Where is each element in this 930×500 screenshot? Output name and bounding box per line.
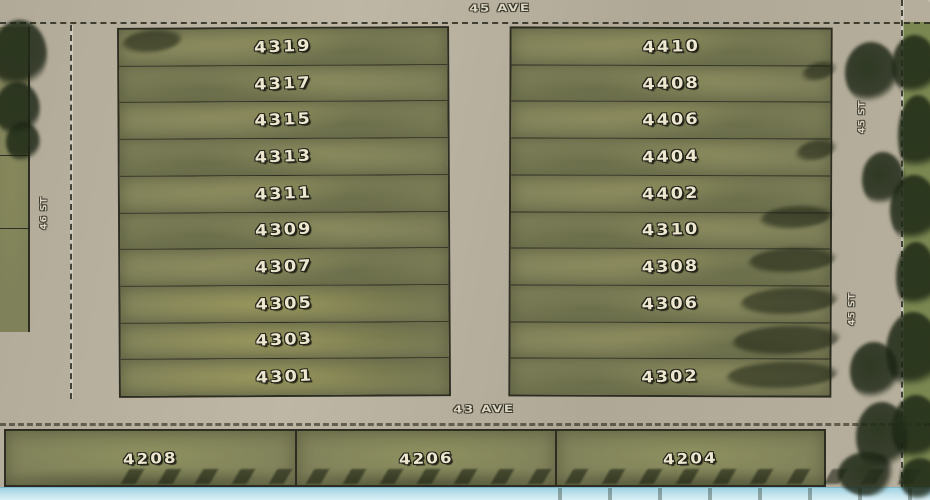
lot-number-label: 4306	[641, 294, 699, 314]
lot-number-label: 4206	[399, 448, 454, 467]
street-label-left-street: 46 ST	[40, 196, 50, 229]
lot-number-label: 4305	[255, 293, 313, 314]
survey-line-left	[70, 25, 73, 399]
lot-number-label: 4310	[641, 220, 699, 240]
lot-parcel[interactable]: 4408	[511, 65, 830, 103]
tree-canopy	[890, 175, 930, 245]
lot-number-label: 4311	[255, 183, 313, 204]
lot-parcel[interactable]: 4406	[511, 102, 830, 140]
tree-canopy	[850, 342, 898, 400]
lot-number-label: 4309	[255, 220, 313, 241]
lot-parcel[interactable]: 4404	[511, 139, 830, 177]
lot-parcel[interactable]: 4311	[120, 175, 448, 213]
survey-line-top	[0, 22, 930, 24]
tree-canopy	[892, 35, 930, 97]
lot-number-label: 4204	[663, 448, 718, 467]
aerial-map[interactable]: 4319 4317 4315 4313 4311 4309 4307 4305 …	[0, 0, 930, 500]
tree-canopy	[6, 122, 40, 162]
tree-canopy	[845, 42, 897, 104]
lot-parcel[interactable]: 4309	[120, 212, 448, 250]
lot-number-label: 4319	[254, 36, 312, 57]
lot-parcel[interactable]: 4315	[119, 102, 447, 140]
boundary-highlight-strip	[0, 487, 930, 500]
lot-parcel[interactable]: 4313	[120, 138, 448, 176]
lot-parcel[interactable]: 4305	[120, 285, 448, 323]
west-lot-block: 4319 4317 4315 4313 4311 4309 4307 4305 …	[117, 26, 451, 398]
tree-canopy	[898, 95, 930, 177]
lot-number-label: 4315	[254, 110, 312, 131]
lot-number-label: 4302	[641, 367, 699, 387]
tree-canopy	[838, 452, 896, 496]
lot-parcel[interactable]: 4307	[120, 248, 448, 286]
lot-number-label: 4208	[123, 448, 178, 467]
street-label-bottom-avenue: 43 AVE	[453, 403, 515, 416]
lot-number-label: 4408	[642, 73, 700, 93]
lot-number-label: 4410	[642, 37, 700, 57]
lot-number-label: 4317	[254, 73, 312, 94]
lot-parcel[interactable]: 4317	[119, 65, 447, 103]
survey-line-bottom	[0, 423, 930, 426]
lot-parcel[interactable]: 4410	[512, 28, 831, 66]
tree-shadow-band	[121, 469, 930, 484]
lot-number-label: 4308	[641, 257, 699, 277]
lot-number-label: 4307	[255, 257, 313, 278]
tree-canopy	[896, 242, 930, 312]
lot-parcel[interactable]: 4303	[121, 322, 449, 360]
street-label-top-avenue: 45 AVE	[469, 2, 531, 15]
tree-canopy	[0, 20, 47, 90]
lot-number-label: 4301	[256, 367, 314, 388]
lot-number-label: 4402	[642, 184, 700, 204]
lot-number-label: 4404	[642, 147, 700, 167]
lot-number-label: 4303	[256, 330, 314, 351]
lot-number-label: 4313	[255, 147, 313, 168]
parcel-line	[0, 228, 28, 229]
street-label-right-street-upper: 45 ST	[858, 100, 868, 133]
lot-number-label: 4406	[642, 110, 700, 130]
lot-parcel[interactable]: 4301	[121, 358, 449, 395]
street-label-right-street-lower: 45 ST	[848, 292, 858, 325]
